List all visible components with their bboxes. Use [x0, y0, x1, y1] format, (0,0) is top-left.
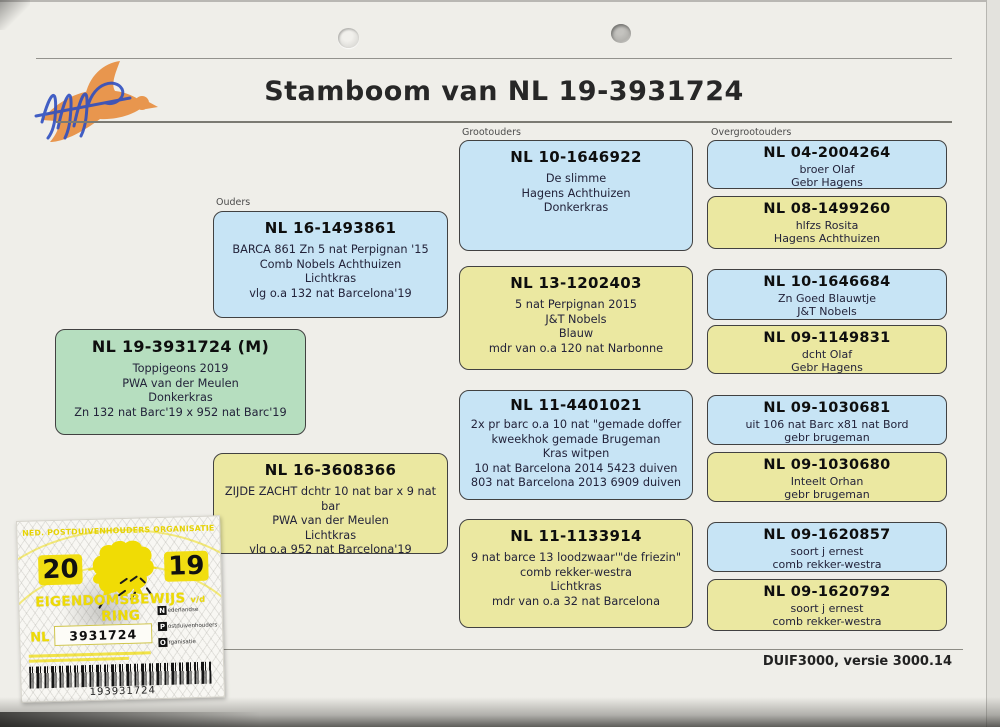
pedigree-line: broer Olaf: [708, 163, 946, 176]
ring-number: NL 09-1620857: [708, 527, 946, 543]
pedigree-line: 10 nat Barcelona 2014 5423 duiven: [460, 462, 692, 477]
pedigree-line: comb rekker-westra: [460, 566, 692, 581]
pedigree-line: soort j ernest: [708, 545, 946, 558]
pedigree-line: gebr brugeman: [708, 488, 946, 501]
ring-number: NL 16-1493861: [214, 219, 447, 237]
column-label-great-grandparents: Overgrootouders: [711, 127, 791, 138]
pedigree-line: J&T Nobels: [460, 313, 692, 328]
npo-row: O rganisatie: [158, 636, 218, 647]
pedigree-box-great-grandparent-3: NL 10-1646684 Zn Goed Blauwtje J&T Nobel…: [707, 269, 947, 320]
pedigree-box-great-grandparent-5: NL 09-1030681 uit 106 nat Barc x81 nat B…: [707, 395, 947, 445]
pedigree-line: vlg o.a 132 nat Barcelona'19: [214, 287, 447, 302]
npo-word: rganisatie: [168, 639, 196, 646]
pedigree-line: mdr van o.a 32 nat Barcelona: [460, 595, 692, 610]
ring-number: NL 09-1030680: [708, 457, 946, 473]
pedigree-line: 2x pr barc o.a 10 nat "gemade doffer: [460, 418, 692, 433]
sticker-ring-number-box: 3931724: [54, 623, 153, 646]
software-version: DUIF3000, versie 3000.14: [763, 654, 952, 669]
scan-top-edge: [0, 0, 1000, 2]
pedigree-line: Lichtkras: [214, 272, 447, 287]
punch-hole-left: [338, 28, 359, 48]
pedigree-line: J&T Nobels: [708, 305, 946, 318]
pedigree-line: PWA van der Meulen: [214, 514, 447, 529]
pedigree-box-grandparent-4: NL 11-1133914 9 nat barce 13 loodzwaar'"…: [459, 519, 693, 628]
ring-number: NL 16-3608366: [214, 461, 447, 479]
pedigree-line: hlfzs Rosita: [708, 219, 946, 232]
sticker-year-right: 19: [164, 551, 209, 582]
column-label-grandparents: Grootouders: [462, 127, 521, 138]
scan-right-edge: [986, 0, 1000, 727]
pedigree-box-great-grandparent-1: NL 04-2004264 broer Olaf Gebr Hagens: [707, 140, 947, 189]
column-label-parents: Ouders: [216, 197, 250, 208]
ring-number: NL 11-1133914: [460, 527, 692, 545]
pedigree-box-grandparent-2: NL 13-1202403 5 nat Perpignan 2015 J&T N…: [459, 266, 693, 370]
npo-letter: N: [157, 606, 166, 615]
pedigree-line: comb rekker-westra: [708, 558, 946, 571]
npo-word: ederlandse: [167, 607, 198, 614]
pedigree-line: Lichtkras: [460, 580, 692, 595]
scan-corner-shadow: [0, 0, 30, 30]
pedigree-box-grandparent-3: NL 11-4401021 2x pr barc o.a 10 nat "gem…: [459, 390, 693, 500]
pedigree-line: Hagens Achthuizen: [460, 187, 692, 202]
pedigree-line: vlg o.a 952 nat Barcelona'19: [214, 543, 447, 554]
pedigree-box-great-grandparent-8: NL 09-1620792 soort j ernest comb rekker…: [707, 579, 947, 631]
pedigree-line: 5 nat Perpignan 2015: [460, 298, 692, 313]
npo-letter: P: [158, 622, 167, 631]
pedigree-box-father: NL 16-1493861 BARCA 861 Zn 5 nat Perpign…: [213, 211, 448, 318]
punch-hole-right: [611, 24, 631, 43]
page-title: Stamboom van NL 19-3931724: [56, 76, 952, 107]
ring-number: NL 09-1030681: [708, 400, 946, 416]
pedigree-line: Hagens Achthuizen: [708, 232, 946, 245]
pedigree-line: ZIJDE ZACHT dchtr 10 nat bar x 9 nat bar: [214, 485, 447, 514]
ownership-sticker: NED. POSTDUIVENHOUDERS ORGANISATIE 20 19…: [16, 515, 225, 703]
pedigree-box-subject: NL 19-3931724 (M) Toppigeons 2019 PWA va…: [55, 329, 306, 435]
npo-row: N ederlandse: [157, 604, 217, 615]
pedigree-line: Inteelt Orhan: [708, 475, 946, 488]
pedigree-line: Kras witpen: [460, 447, 692, 462]
pedigree-line: Donkerkras: [56, 391, 305, 406]
pedigree-line: Zn Goed Blauwtje: [708, 292, 946, 305]
ring-number: NL 11-4401021: [460, 396, 692, 414]
ring-number: NL 09-1620792: [708, 584, 946, 600]
scan-bottom-left-shadow: [0, 712, 260, 727]
header-rule-top: [36, 58, 952, 59]
pedigree-line: soort j ernest: [708, 602, 946, 615]
ring-number: NL 10-1646922: [460, 148, 692, 166]
pedigree-box-great-grandparent-6: NL 09-1030680 Inteelt Orhan gebr brugema…: [707, 452, 947, 502]
pedigree-line: BARCA 861 Zn 5 nat Perpignan '15: [214, 243, 447, 258]
pedigree-line: dcht Olaf: [708, 348, 946, 361]
ring-number: NL 08-1499260: [708, 201, 946, 217]
pedigree-line: De slimme: [460, 172, 692, 187]
ring-number: NL 19-3931724 (M): [56, 337, 305, 356]
sticker-country-code: NL: [30, 630, 50, 646]
ring-number: NL 13-1202403: [460, 274, 692, 292]
pedigree-line: gebr brugeman: [708, 431, 946, 444]
pedigree-line: Blauw: [460, 327, 692, 342]
pedigree-line: Lichtkras: [214, 529, 447, 544]
pedigree-line: Comb Nobels Achthuizen: [214, 258, 447, 273]
ring-number: NL 09-1149831: [708, 330, 946, 346]
ring-number: NL 04-2004264: [708, 145, 946, 161]
sticker-year-left: 20: [38, 554, 83, 585]
header-rule-bottom: [56, 121, 952, 123]
pedigree-line: Gebr Hagens: [708, 176, 946, 189]
sticker-title-end: RING: [101, 608, 140, 625]
pedigree-box-great-grandparent-2: NL 08-1499260 hlfzs Rosita Hagens Achthu…: [707, 196, 947, 249]
pedigree-line: comb rekker-westra: [708, 615, 946, 628]
npo-word: ostduivenhouders: [168, 622, 218, 629]
pedigree-box-grandparent-1: NL 10-1646922 De slimme Hagens Achthuize…: [459, 140, 693, 251]
sticker-ring-number: 3931724: [69, 626, 137, 643]
pedigree-line: Gebr Hagens: [708, 361, 946, 374]
npo-abbreviation: N ederlandse P ostduivenhouders O rganis…: [157, 604, 217, 647]
pedigree-line: 803 nat Barcelona 2013 6909 duiven: [460, 476, 692, 491]
pedigree-box-mother: NL 16-3608366 ZIJDE ZACHT dchtr 10 nat b…: [213, 453, 448, 554]
pedigree-line: Donkerkras: [460, 201, 692, 216]
pedigree-box-great-grandparent-7: NL 09-1620857 soort j ernest comb rekker…: [707, 522, 947, 572]
npo-letter: O: [158, 638, 167, 647]
pedigree-box-great-grandparent-4: NL 09-1149831 dcht Olaf Gebr Hagens: [707, 325, 947, 374]
pedigree-line: mdr van o.a 120 nat Narbonne: [460, 342, 692, 357]
pedigree-line: Zn 132 nat Barc'19 x 952 nat Barc'19: [56, 406, 305, 421]
pedigree-line: PWA van der Meulen: [56, 377, 305, 392]
ring-number: NL 10-1646684: [708, 274, 946, 290]
pedigree-line: Toppigeons 2019: [56, 362, 305, 377]
npo-row: P ostduivenhouders: [158, 620, 218, 631]
sticker-title-mid: v/d: [190, 595, 205, 604]
pedigree-line: 9 nat barce 13 loodzwaar'"de friezin": [460, 551, 692, 566]
pedigree-line: kweekhok gemade Brugeman: [460, 433, 692, 448]
pedigree-line: uit 106 nat Barc x81 nat Bord: [708, 418, 946, 431]
